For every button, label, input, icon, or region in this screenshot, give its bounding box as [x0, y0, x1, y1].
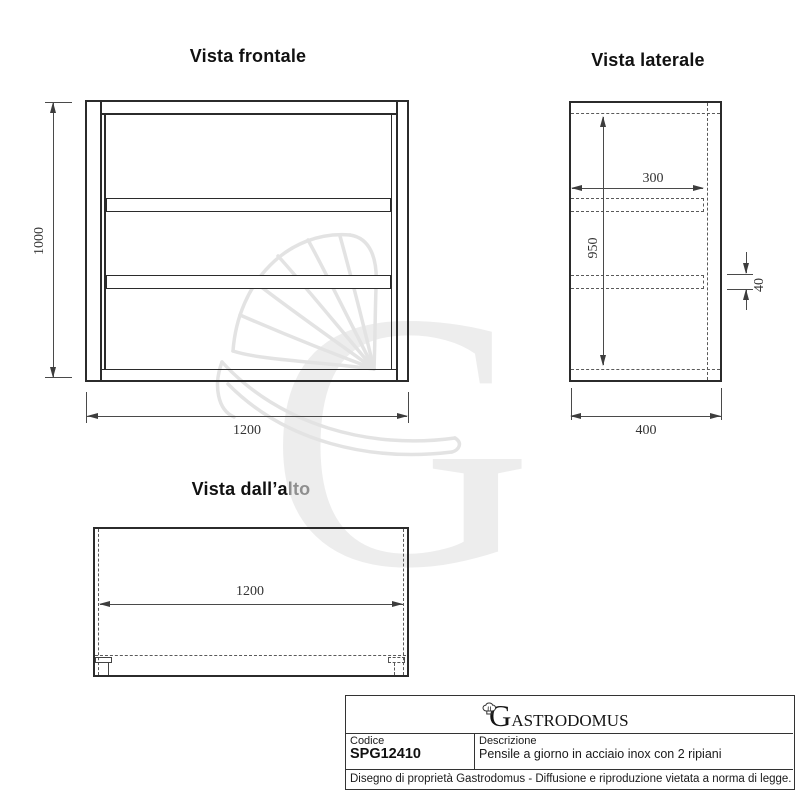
- front-dim-width-arrow-right: [397, 413, 408, 419]
- side-dim-shelf-depth-line: [572, 188, 703, 189]
- brand-rest: ASTRODOMUS: [511, 711, 628, 731]
- chef-hat-icon: [482, 702, 498, 716]
- side-dim-depth-value: 400: [616, 423, 676, 439]
- top-right-bracket: [388, 657, 405, 663]
- front-dim-width-arrow-left: [87, 413, 98, 419]
- top-hidden-back-line: [95, 655, 406, 656]
- title-block-row-divider-2: [346, 769, 793, 770]
- front-shelf-2: [106, 275, 391, 289]
- side-shelf-1: [571, 198, 704, 212]
- side-dim-shelf-depth-arrow-right: [693, 185, 704, 191]
- front-dim-height-line: [53, 103, 54, 377]
- front-dim-width-line: [87, 416, 407, 417]
- front-view-title: Vista frontale: [173, 46, 323, 67]
- title-block-row-divider-1: [346, 733, 793, 734]
- title-block-footer: Disegno di proprietà Gastrodomus - Diffu…: [350, 773, 792, 785]
- top-dim-width-arrow-right: [392, 601, 403, 607]
- side-dim-shelf-thickness-arrow-top: [743, 263, 749, 274]
- title-block: GASTRODOMUS Codice SPG12410 Descrizione …: [345, 695, 795, 790]
- top-view-title-faded: lto: [288, 479, 311, 499]
- side-dim-shelf-thickness-value: 40: [752, 271, 768, 299]
- side-dim-inner-height-arrow-top: [600, 116, 606, 127]
- front-dim-height-arrow-top: [50, 102, 56, 113]
- front-dim-height-value: 1000: [32, 221, 48, 261]
- top-dim-width-value: 1200: [220, 584, 280, 600]
- side-shelf-2: [571, 275, 704, 289]
- side-dim-shelf-depth-arrow-left: [571, 185, 582, 191]
- front-left-post-line: [100, 102, 102, 380]
- front-top-rail-line: [101, 113, 397, 115]
- top-right-bracket-line: [394, 663, 395, 675]
- front-dim-width-value: 1200: [217, 423, 277, 439]
- side-hidden-top-line: [571, 113, 720, 114]
- front-inner-right-line: [391, 114, 393, 369]
- side-dim-shelf-thickness-arrow-bottom: [743, 289, 749, 300]
- gastrodomus-logo: GASTRODOMUS: [482, 700, 629, 731]
- top-left-bracket: [95, 657, 112, 663]
- side-back-panel-line: [707, 103, 708, 380]
- front-dim-width-ext-right: [408, 392, 409, 423]
- side-dim-depth-line: [571, 416, 721, 417]
- front-inner-left-line: [104, 114, 106, 369]
- top-dim-width-arrow-left: [99, 601, 110, 607]
- side-dim-depth-arrow-left: [570, 413, 581, 419]
- side-dim-inner-height-line: [603, 117, 604, 365]
- side-dim-depth-arrow-right: [710, 413, 721, 419]
- top-hidden-right-line: [403, 529, 404, 675]
- technical-drawing-page: G Vista frontale 1000 12: [0, 0, 800, 800]
- front-dim-height-arrow-bottom: [50, 367, 56, 378]
- side-hidden-bottom-line: [571, 369, 720, 370]
- side-dim-inner-height-value: 950: [586, 228, 602, 268]
- top-view-title-dark: Vista dall’a: [192, 479, 288, 499]
- front-shelf-1: [106, 198, 391, 212]
- front-view-outline: [85, 100, 409, 382]
- side-view-title: Vista laterale: [573, 50, 723, 71]
- side-dim-shelf-depth-value: 300: [628, 171, 678, 187]
- front-right-post-line: [396, 102, 398, 380]
- top-left-bracket-line: [108, 663, 109, 675]
- descrizione-value: Pensile a giorno in acciaio inox con 2 r…: [479, 747, 722, 761]
- top-dim-width-line: [100, 604, 403, 605]
- side-dim-shelf-thickness-ext-bottom: [727, 289, 753, 290]
- side-dim-shelf-thickness-ext-top: [727, 274, 753, 275]
- title-block-column-divider: [474, 733, 475, 769]
- codice-value: SPG12410: [350, 746, 421, 762]
- descrizione-label: Descrizione: [479, 735, 536, 747]
- front-bottom-rail-line: [101, 369, 397, 371]
- side-dim-inner-height-arrow-bottom: [600, 355, 606, 366]
- top-view-title: Vista dall’alto: [176, 479, 326, 500]
